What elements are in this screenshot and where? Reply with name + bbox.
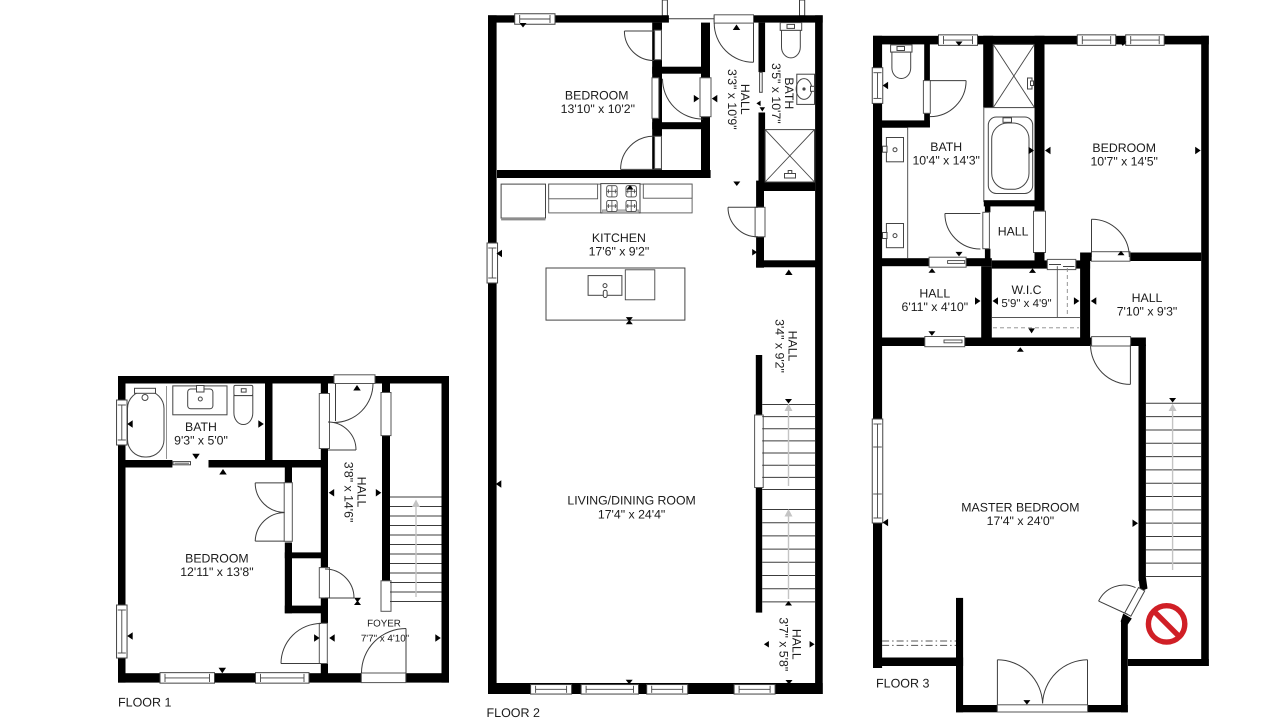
svg-text:BEDROOM: BEDROOM bbox=[185, 552, 249, 566]
svg-text:17'6" x 9'2": 17'6" x 9'2" bbox=[589, 245, 650, 259]
svg-text:7'10" x 9'3": 7'10" x 9'3" bbox=[1117, 305, 1178, 319]
svg-text:BEDROOM: BEDROOM bbox=[1092, 141, 1156, 155]
svg-text:BATH: BATH bbox=[930, 140, 962, 154]
svg-text:BEDROOM: BEDROOM bbox=[565, 88, 629, 102]
svg-text:5'9" x 4'9": 5'9" x 4'9" bbox=[1001, 298, 1051, 310]
svg-text:9'3" x 5'0": 9'3" x 5'0" bbox=[174, 434, 228, 448]
svg-text:HALL: HALL bbox=[919, 286, 950, 300]
svg-text:12'11" x 13'8": 12'11" x 13'8" bbox=[180, 565, 253, 579]
svg-text:HALL: HALL bbox=[1132, 291, 1163, 305]
svg-text:HALL: HALL bbox=[998, 225, 1029, 239]
svg-text:KITCHEN: KITCHEN bbox=[592, 231, 646, 245]
svg-text:W.I.C: W.I.C bbox=[1011, 283, 1041, 297]
svg-text:MASTER BEDROOM: MASTER BEDROOM bbox=[961, 501, 1079, 515]
svg-text:10'7" x 14'5": 10'7" x 14'5" bbox=[1090, 155, 1157, 169]
svg-text:17'4" x 24'4": 17'4" x 24'4" bbox=[598, 507, 665, 521]
svg-text:FLOOR 1: FLOOR 1 bbox=[118, 696, 172, 710]
svg-text:10'4" x 14'3": 10'4" x 14'3" bbox=[912, 153, 979, 167]
svg-text:7'7" x 4'10": 7'7" x 4'10" bbox=[361, 634, 410, 645]
svg-text:13'10" x 10'2": 13'10" x 10'2" bbox=[561, 102, 635, 116]
svg-text:LIVING/DINING ROOM: LIVING/DINING ROOM bbox=[567, 494, 695, 508]
svg-text:FOYER: FOYER bbox=[367, 619, 401, 630]
svg-text:6'11" x 4'10": 6'11" x 4'10" bbox=[902, 300, 969, 314]
svg-text:BATH: BATH bbox=[185, 420, 217, 434]
svg-text:FLOOR 2: FLOOR 2 bbox=[487, 706, 541, 720]
svg-text:FLOOR 3: FLOOR 3 bbox=[876, 677, 930, 691]
svg-text:17'4" x 24'0": 17'4" x 24'0" bbox=[987, 514, 1054, 528]
